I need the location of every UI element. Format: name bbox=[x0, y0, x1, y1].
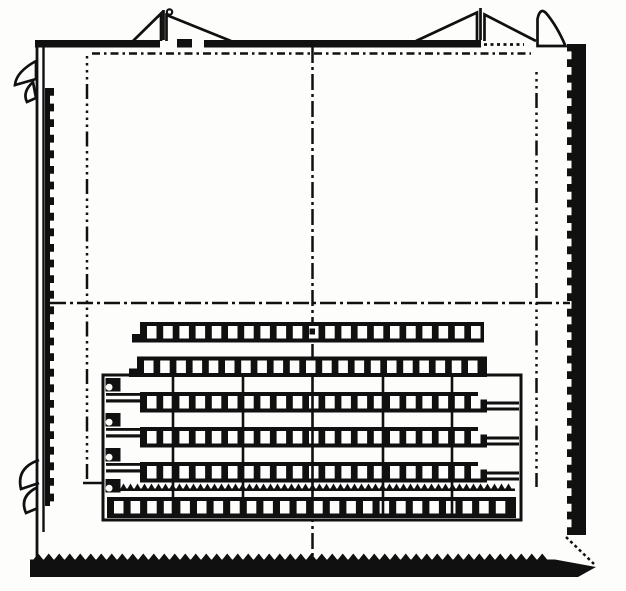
strip-row-6-hole bbox=[429, 501, 439, 514]
left-clamp-pin bbox=[167, 9, 172, 14]
strip-row-6-hole bbox=[313, 501, 323, 514]
strip-row-3-hole bbox=[147, 396, 157, 409]
strip-row-1-hole bbox=[455, 326, 465, 339]
strip-row-6-hole bbox=[380, 501, 390, 514]
strip-row-4-hole bbox=[179, 431, 189, 444]
strip-row-2-hole bbox=[160, 361, 170, 374]
strip-row-6-hole bbox=[263, 501, 273, 514]
bottom-border-sawtooth bbox=[464, 554, 475, 561]
bottom-border-sawtooth bbox=[390, 554, 401, 561]
strip-row-1-hole bbox=[293, 326, 303, 339]
strip-row-5-hole bbox=[196, 466, 206, 479]
strip-row-5-hole bbox=[390, 466, 400, 479]
strip-row-2-hole bbox=[290, 361, 300, 374]
top-border-block bbox=[177, 39, 192, 48]
strip-row-5-hole bbox=[277, 466, 287, 479]
strip-row-6-hole bbox=[363, 501, 373, 514]
bottom-border-sawtooth bbox=[338, 554, 349, 561]
strip-row-6-hole bbox=[214, 501, 224, 514]
strip-row-3-hole bbox=[212, 396, 222, 409]
bottom-border-sawtooth bbox=[275, 554, 286, 561]
strip-row-4-hole bbox=[228, 431, 238, 444]
bottom-border-sawtooth bbox=[222, 554, 233, 561]
bottom-border-sawtooth bbox=[54, 554, 65, 561]
strip-row-4-hole bbox=[277, 431, 287, 444]
strip-row-5-hole bbox=[244, 466, 254, 479]
bottom-border-sawtooth bbox=[254, 554, 265, 561]
bottom-border-sawtooth bbox=[443, 554, 454, 561]
strip-row-1-hole bbox=[471, 326, 481, 339]
strip-row-4-hole bbox=[406, 431, 416, 444]
strip-row-5-hole bbox=[260, 466, 270, 479]
strip-row-2-hole bbox=[452, 361, 462, 374]
drawing-canvas bbox=[0, 0, 626, 591]
right-top-flap bbox=[538, 11, 566, 46]
bottom-border-sawtooth bbox=[159, 554, 170, 561]
strip-row-2-hole bbox=[371, 361, 381, 374]
left-hatched-wall bbox=[45, 88, 54, 506]
strip-row-1-hole bbox=[390, 326, 400, 339]
strip-row-5-hole bbox=[163, 466, 173, 479]
bottom-border-sawtooth bbox=[537, 554, 548, 561]
strip-row-3-hole bbox=[390, 396, 400, 409]
bottom-border-sawtooth bbox=[86, 554, 97, 561]
bottom-border-sawtooth bbox=[117, 554, 128, 561]
strip-row-4-hole bbox=[439, 431, 449, 444]
strip-right-fork bbox=[486, 402, 519, 405]
strip-row-2-hole bbox=[225, 361, 235, 374]
strip-row-4-hole bbox=[260, 431, 270, 444]
strip-row-3-hole bbox=[439, 396, 449, 409]
bottom-border-sawtooth bbox=[401, 554, 412, 561]
bottom-border-sawtooth bbox=[170, 554, 181, 561]
strip-row-5-hole bbox=[439, 466, 449, 479]
strip-row-2-hole bbox=[241, 361, 251, 374]
tray-latch-hook-notch bbox=[106, 454, 113, 461]
strip-row-2-hole bbox=[403, 361, 413, 374]
strip-row-3-hole bbox=[244, 396, 254, 409]
strip-row-1-hole bbox=[260, 326, 270, 339]
left-clamp-triangle-a bbox=[133, 14, 161, 42]
strip-row-2-hole bbox=[468, 361, 478, 374]
strip-row-6-hole bbox=[413, 501, 423, 514]
strip-row-4-hole bbox=[341, 431, 351, 444]
bottom-border-sawtooth bbox=[201, 554, 212, 561]
bottom-border-sawtooth bbox=[128, 554, 139, 561]
strip-row-4-hole bbox=[212, 431, 222, 444]
strip-left-tail-slot bbox=[106, 466, 140, 470]
strip-row-4-hole bbox=[196, 431, 206, 444]
bottom-border-sawtooth bbox=[453, 554, 464, 561]
strip-left-tail-slot bbox=[106, 396, 140, 400]
strip-row-3-hole bbox=[406, 396, 416, 409]
bottom-border-sawtooth bbox=[317, 554, 328, 561]
strip-row-6-hole bbox=[463, 501, 473, 514]
strip-row-1-hole bbox=[422, 326, 432, 339]
tray-latch-hook-notch bbox=[106, 384, 113, 391]
strip-row-2-hole bbox=[338, 361, 348, 374]
strip-row-5-hole bbox=[228, 466, 238, 479]
bottom-border-sawtooth bbox=[65, 554, 76, 561]
bottom-border-sawtooth bbox=[369, 554, 380, 561]
strip-row-2-hole bbox=[144, 361, 154, 374]
bottom-border-sawtooth bbox=[96, 554, 107, 561]
strip-row-1-step bbox=[132, 334, 141, 343]
strip-row-6-hole bbox=[396, 501, 406, 514]
strip-row-2-hole bbox=[193, 361, 203, 374]
bottom-border-sawtooth bbox=[348, 554, 359, 561]
bottom-border-sawtooth bbox=[411, 554, 422, 561]
bottom-border-sawtooth bbox=[495, 554, 506, 561]
strip-right-fork bbox=[486, 472, 519, 475]
strip-row-4-hole bbox=[390, 431, 400, 444]
strip-row-4-hole bbox=[422, 431, 432, 444]
strip-row-6-hole bbox=[479, 501, 489, 514]
strip-row-1-hole bbox=[163, 326, 173, 339]
strip-row-2-step bbox=[129, 369, 138, 378]
strip-row-4-hole bbox=[455, 431, 465, 444]
strip-row-4-hole bbox=[293, 431, 303, 444]
strip-row-2-hole bbox=[257, 361, 267, 374]
figure bbox=[0, 0, 626, 591]
strip-row-2-hole bbox=[322, 361, 332, 374]
bottom-border-sawtooth bbox=[527, 554, 538, 561]
strip-row-1-hole bbox=[228, 326, 238, 339]
strip-row-6-hole bbox=[496, 501, 506, 514]
strip-row-6-hole bbox=[197, 501, 207, 514]
corner-chamfer-dots bbox=[566, 537, 594, 564]
strip-row-2-hole bbox=[176, 361, 186, 374]
bottom-border-sawtooth bbox=[506, 554, 517, 561]
strip-row-5-hole bbox=[422, 466, 432, 479]
strip-row-5-hole bbox=[341, 466, 351, 479]
bottom-border-sawtooth bbox=[107, 554, 118, 561]
strip-row-1-hole bbox=[179, 326, 189, 339]
tray-latch-hook-notch bbox=[106, 419, 113, 426]
bottom-border-sawtooth bbox=[422, 554, 433, 561]
top-border-right bbox=[204, 40, 481, 48]
strip-right-fork bbox=[486, 408, 519, 411]
strip-row-3-hole bbox=[358, 396, 368, 409]
bottom-border-sawtooth bbox=[485, 554, 496, 561]
strip-row-5-hole bbox=[293, 466, 303, 479]
bottom-border-sawtooth bbox=[306, 554, 317, 561]
strip-row-2-hole bbox=[355, 361, 365, 374]
strip-row-6-hole bbox=[180, 501, 190, 514]
strip-row-4-hole bbox=[358, 431, 368, 444]
bottom-border-sawtooth bbox=[44, 554, 55, 561]
strip-row-5-hole bbox=[455, 466, 465, 479]
strip-row-4-notch bbox=[478, 427, 487, 435]
strip-row-6-hole bbox=[330, 501, 340, 514]
strip-row-3-hole bbox=[293, 396, 303, 409]
top-border-left bbox=[35, 40, 160, 48]
strip-row-2-hole bbox=[436, 361, 446, 374]
strip-row-3-hole bbox=[196, 396, 206, 409]
bottom-border-sawtooth bbox=[33, 554, 44, 561]
strip-row-3-hole bbox=[163, 396, 173, 409]
bottom-border-sawtooth bbox=[180, 554, 191, 561]
strip-row-6-hole bbox=[114, 501, 124, 514]
strip-row-1-hole bbox=[196, 326, 206, 339]
strip-row-5-notch bbox=[478, 462, 487, 470]
strip-row-1-hole bbox=[277, 326, 287, 339]
strip-row-2-hole bbox=[209, 361, 219, 374]
bottom-border bbox=[30, 560, 596, 578]
strip-row-2-hole bbox=[419, 361, 429, 374]
strip-row-3-hole bbox=[277, 396, 287, 409]
strip-row-2-hole bbox=[306, 361, 316, 374]
bottom-border-sawtooth bbox=[380, 554, 391, 561]
strip-right-fork bbox=[486, 478, 519, 481]
bottom-border-sawtooth bbox=[327, 554, 338, 561]
strip-right-fork bbox=[486, 437, 519, 440]
bottom-border-sawtooth bbox=[243, 554, 254, 561]
strip-row-6-hole bbox=[147, 501, 157, 514]
strip-row-1-hole bbox=[212, 326, 222, 339]
center-pivot-dot bbox=[310, 329, 316, 335]
bottom-border-sawtooth bbox=[233, 554, 244, 561]
right-clamp-triangle-b bbox=[485, 15, 537, 42]
strip-row-1-hole bbox=[374, 326, 384, 339]
strip-row-1-hole bbox=[244, 326, 254, 339]
strip-row-5-hole bbox=[179, 466, 189, 479]
strip-row-4-hole bbox=[163, 431, 173, 444]
bottom-border-sawtooth bbox=[212, 554, 223, 561]
strip-row-3-hole bbox=[228, 396, 238, 409]
strip-row-3-hole bbox=[341, 396, 351, 409]
strip-row-3-hole bbox=[179, 396, 189, 409]
strip-row-5-hole bbox=[212, 466, 222, 479]
strip-row-5-hole bbox=[358, 466, 368, 479]
strip-row-1-hole bbox=[147, 326, 157, 339]
bottom-border-sawtooth bbox=[359, 554, 370, 561]
right-clamp-triangle-a bbox=[416, 13, 477, 42]
bottom-border-sawtooth bbox=[432, 554, 443, 561]
right-hatched-wall bbox=[567, 44, 586, 535]
strip-row-4-hole bbox=[147, 431, 157, 444]
strip-row-3-hole bbox=[325, 396, 335, 409]
left-top-pennant-tail bbox=[25, 82, 36, 102]
strip-row-1-hole bbox=[341, 326, 351, 339]
bottom-border-sawtooth bbox=[75, 554, 86, 561]
bottom-border-sawtooth bbox=[474, 554, 485, 561]
strip-row-3-notch bbox=[478, 392, 487, 400]
strip-row-5-hole bbox=[406, 466, 416, 479]
bottom-border-sawtooth bbox=[138, 554, 149, 561]
strip-row-5-hole bbox=[147, 466, 157, 479]
strip-row-3-hole bbox=[455, 396, 465, 409]
strip-row-6-hole bbox=[280, 501, 290, 514]
bottom-border-sawtooth bbox=[149, 554, 160, 561]
strip-row-1-hole bbox=[406, 326, 416, 339]
strip-row-5-hole bbox=[325, 466, 335, 479]
bottom-border-sawtooth bbox=[285, 554, 296, 561]
left-clamp-triangle-b bbox=[167, 15, 232, 41]
strip-row-6-hole bbox=[230, 501, 240, 514]
strip-row-6-hole bbox=[346, 501, 356, 514]
bottom-border-sawtooth bbox=[516, 554, 527, 561]
bottom-border-sawtooth bbox=[296, 554, 307, 561]
strip-row-4-hole bbox=[244, 431, 254, 444]
strip-row-6-hole bbox=[131, 501, 141, 514]
strip-row-1-hole bbox=[325, 326, 335, 339]
strip-row-2-hole bbox=[387, 361, 397, 374]
strip-row-6-hole bbox=[247, 501, 256, 514]
strip-row-6-hole bbox=[297, 501, 307, 514]
strip-row-3-hole bbox=[260, 396, 270, 409]
strip-left-tail-slot bbox=[106, 431, 140, 435]
strip-row-1-hole bbox=[439, 326, 449, 339]
strip-row-4-hole bbox=[325, 431, 335, 444]
strip-row-2-hole bbox=[274, 361, 284, 374]
bottom-border-sawtooth bbox=[191, 554, 202, 561]
strip-row-1-hole bbox=[358, 326, 368, 339]
strip-row-3-hole bbox=[422, 396, 432, 409]
bottom-border-sawtooth bbox=[264, 554, 275, 561]
tray-latch-hook-notch bbox=[106, 485, 113, 492]
strip-right-fork bbox=[486, 443, 519, 446]
